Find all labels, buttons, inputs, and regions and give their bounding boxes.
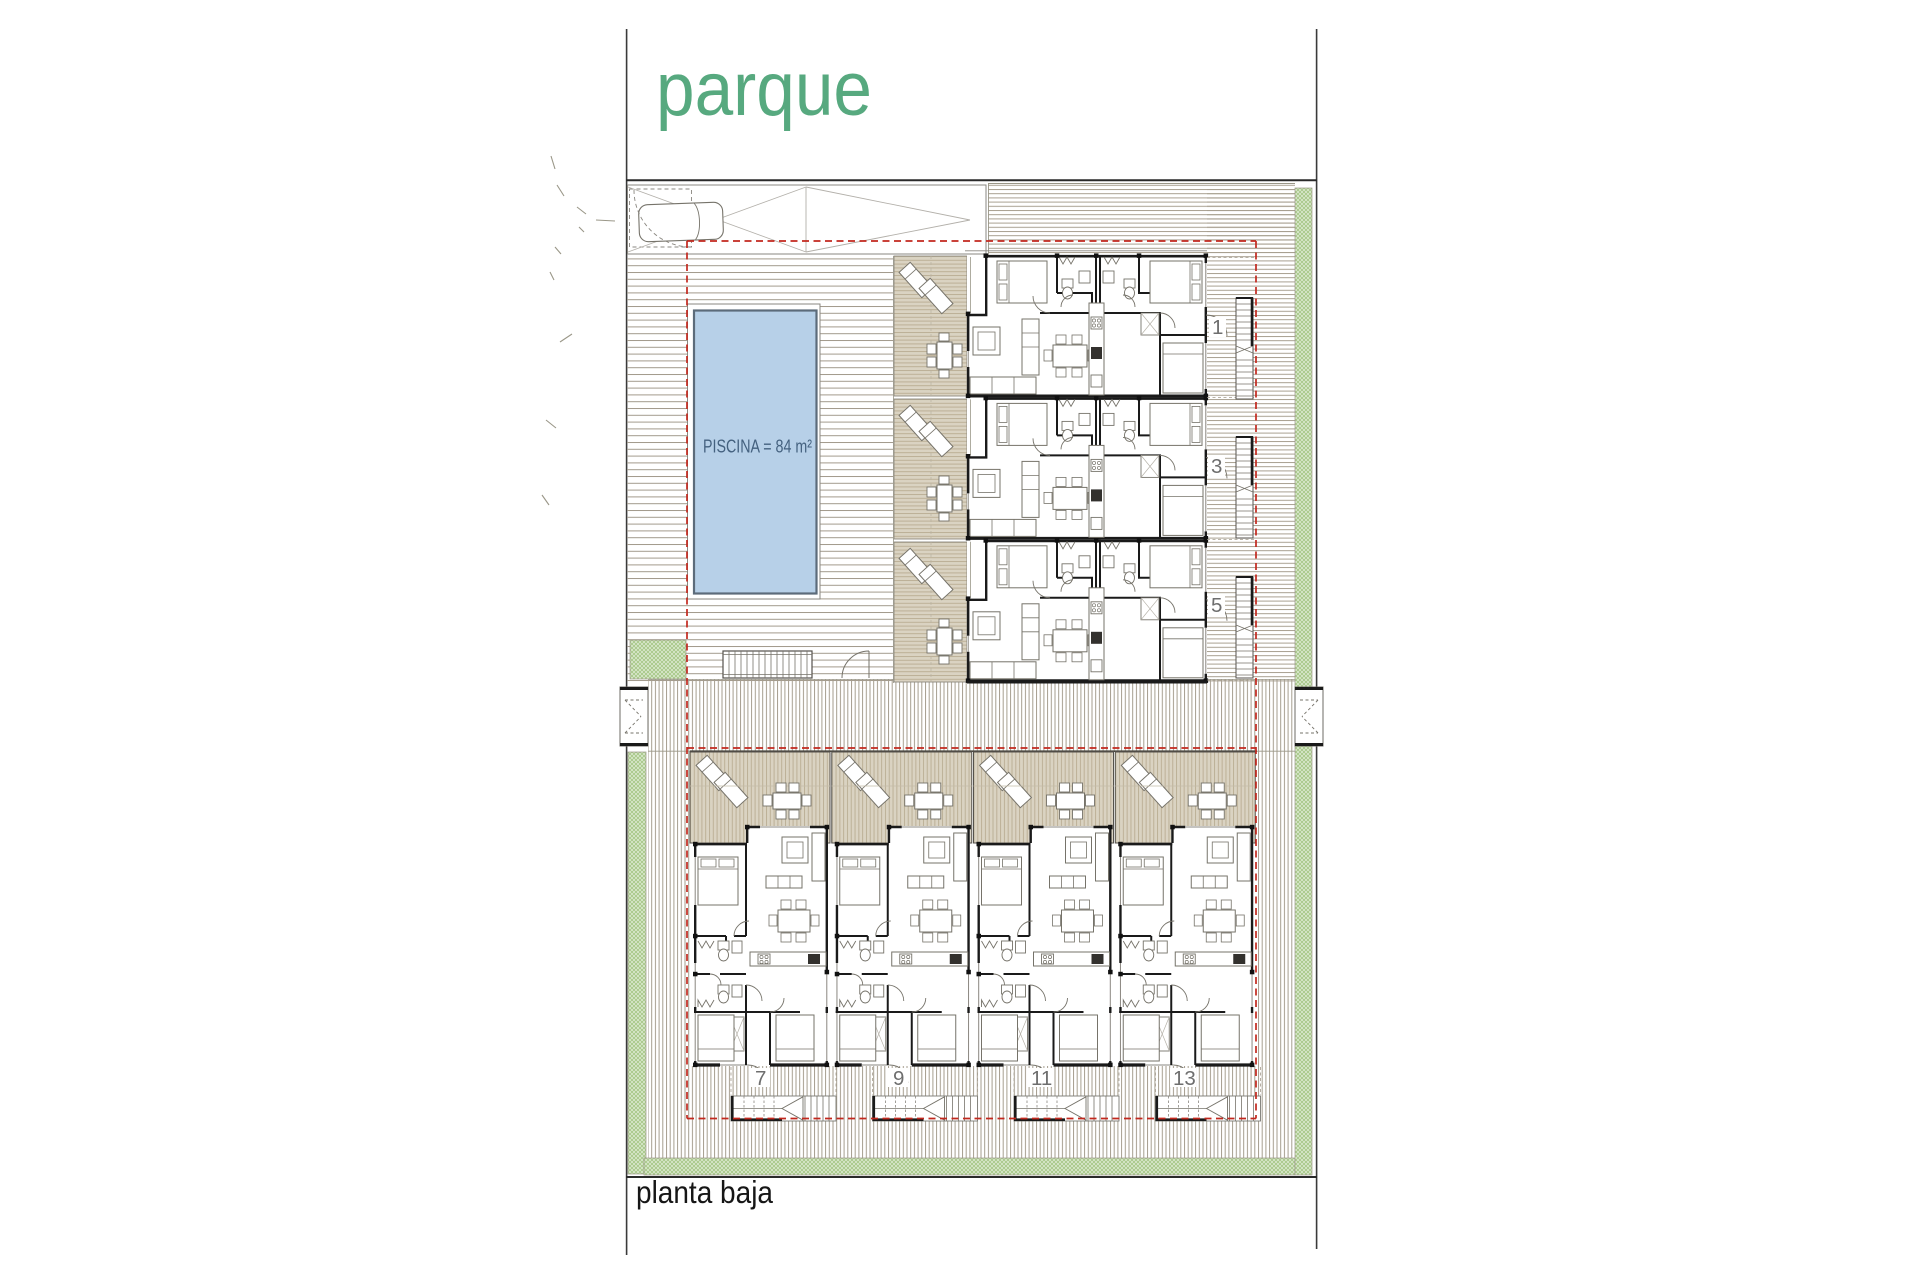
svg-text:7: 7 xyxy=(755,1067,766,1090)
svg-text:11: 11 xyxy=(1031,1067,1052,1090)
svg-text:parque: parque xyxy=(656,47,872,132)
svg-text:9: 9 xyxy=(893,1067,904,1090)
svg-text:1: 1 xyxy=(1212,316,1223,339)
svg-text:3: 3 xyxy=(1211,455,1222,478)
svg-text:planta baja: planta baja xyxy=(636,1174,773,1210)
svg-text:5: 5 xyxy=(1211,594,1222,617)
svg-text:PISCINA = 84 m²: PISCINA = 84 m² xyxy=(703,436,812,457)
svg-text:13: 13 xyxy=(1173,1067,1196,1090)
